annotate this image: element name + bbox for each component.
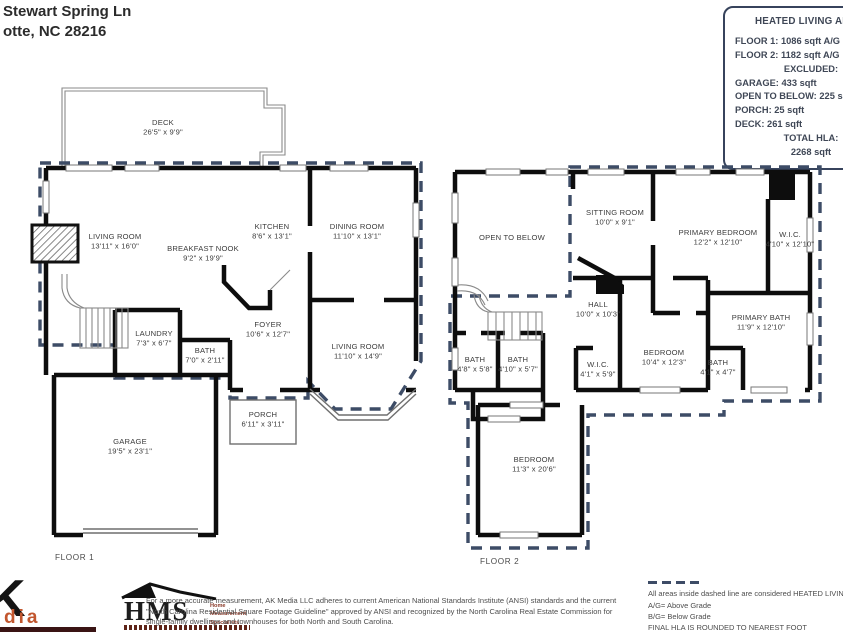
ak-logo-bar — [0, 627, 96, 632]
room-label-dining-room: DINING ROOM — [330, 222, 385, 231]
room-label-bath-a: BATH — [465, 355, 486, 364]
hla-garage: GARAGE: 433 sqft — [735, 77, 843, 91]
room-label-bath-b: BATH — [508, 355, 529, 364]
room-dims-hall: 10'0" x 10'3" — [576, 310, 620, 319]
chimney-chase — [769, 174, 795, 200]
room-label-foyer: FOYER — [254, 320, 281, 329]
address-line2: otte, NC 28216 — [3, 22, 131, 42]
room-label-wic-2: W.I.C. — [587, 360, 609, 369]
dashed-line-symbol — [648, 581, 702, 584]
room-dims-living-room: 13'11" x 16'0" — [91, 242, 139, 251]
hla-total-heading: TOTAL HLA: — [735, 132, 843, 146]
hla-total-value: 2268 sqft — [735, 146, 843, 160]
legend-line-2: A/G= Above Grade — [648, 600, 843, 611]
room-label-open-to-below: OPEN TO BELOW — [479, 233, 546, 242]
room-dims-breakfast-nook: 9'2" x 19'9" — [183, 254, 223, 263]
hla-title: HEATED LIVING AREA: — [735, 15, 843, 30]
room-dims-wic: 4'10" x 12'10" — [766, 240, 815, 249]
room-dims-bath: 7'0" x 2'11" — [185, 356, 224, 365]
room-dims-deck: 26'5" x 9'9" — [143, 128, 183, 137]
fireplace — [32, 225, 78, 262]
room-dims-laundry: 7'3" x 6'7" — [136, 339, 172, 348]
room-dims-bath-b: 4'10" x 5'7" — [498, 365, 538, 374]
garage-door — [83, 529, 198, 533]
room-dims-kitchen: 8'6" x 13'1" — [252, 232, 292, 241]
room-dims-bath-c: 4'1" x 4'7" — [700, 368, 736, 377]
room-label-bath-c: BATH — [708, 358, 729, 367]
room-label-sitting-room: SITTING ROOM — [586, 208, 644, 217]
hla-open-to-below: OPEN TO BELOW: 225 sqft — [735, 90, 843, 104]
room-label-bedroom-2: BEDROOM — [514, 455, 555, 464]
room-label-laundry: LAUNDRY — [135, 329, 173, 338]
room-dims-bedroom: 10'4" x 12'3" — [642, 358, 686, 367]
room-label-deck: DECK — [152, 118, 174, 127]
address-line1: Stewart Spring Ln — [3, 2, 131, 22]
room-label-kitchen: KITCHEN — [255, 222, 290, 231]
room-label-breakfast-nook: BREAKFAST NOOK — [167, 244, 239, 253]
room-dims-bedroom-2: 11'3" x 20'6" — [512, 465, 556, 474]
legend-line-1: All areas inside dashed line are conside… — [648, 588, 843, 599]
heated-living-area-box: HEATED LIVING AREA: FLOOR 1: 1086 sqft A… — [723, 6, 843, 170]
room-label-hall: HALL — [588, 300, 608, 309]
room-label-primary-bedroom: PRIMARY BEDROOM — [679, 228, 758, 237]
room-label-living-room-2: LIVING ROOM — [332, 342, 385, 351]
hla-floor2: FLOOR 2: 1182 sqft A/G — [735, 49, 843, 63]
room-dims-dining-room: 11'10" x 13'1" — [333, 232, 381, 241]
room-label-primary-bath: PRIMARY BATH — [732, 313, 791, 322]
room-label-bath: BATH — [195, 346, 216, 355]
room-dims-sitting-room: 10'0" x 9'1" — [595, 218, 635, 227]
hla-floor1: FLOOR 1: 1086 sqft A/G — [735, 35, 843, 49]
room-label-porch: PORCH — [249, 410, 277, 419]
room-dims-porch: 6'11" x 3'11" — [241, 420, 284, 429]
property-address: Stewart Spring Ln otte, NC 28216 — [3, 2, 131, 43]
floor1-label: FLOOR 1 — [55, 553, 94, 562]
room-label-garage: GARAGE — [113, 437, 147, 446]
ak-media-logo: K dia — [0, 583, 112, 632]
ak-logo-sub: dia — [4, 607, 40, 629]
room-label-bedroom: BEDROOM — [644, 348, 685, 357]
floor2-label: FLOOR 2 — [480, 557, 519, 566]
legend-line-4: FINAL HLA IS ROUNDED TO NEAREST FOOT — [648, 622, 843, 632]
room-label-living-room: LIVING ROOM — [89, 232, 142, 241]
room-dims-wic-2: 4'1" x 5'9" — [580, 370, 616, 379]
hla-porch: PORCH: 25 sqft — [735, 104, 843, 118]
disclaimer-text: For a more accurate measurement, AK Medi… — [146, 596, 620, 628]
hla-excluded-heading: EXCLUDED: — [735, 63, 843, 77]
room-dims-foyer: 10'6" x 12'7" — [246, 330, 290, 339]
closet-door — [270, 270, 290, 290]
legend: All areas inside dashed line are conside… — [648, 581, 843, 632]
floor2-heated-boundary — [450, 167, 820, 548]
hla-deck: DECK: 261 sqft — [735, 118, 843, 132]
room-dims-primary-bath: 11'9" x 12'10" — [737, 323, 785, 332]
legend-line-3: B/G= Below Grade — [648, 611, 843, 622]
room-dims-primary-bedroom: 12'2" x 12'10" — [694, 238, 743, 247]
room-dims-bath-a: 4'8" x 5'8" — [457, 365, 493, 374]
floor2-room-labels: OPEN TO BELOW SITTING ROOM 10'0" x 9'1" … — [457, 208, 814, 474]
room-label-wic: W.I.C. — [779, 230, 801, 239]
room-dims-living-room-2: 11'10" x 14'9" — [334, 352, 382, 361]
floor1-plan: DECK 26'5" x 9'9" LIVING ROOM 13'11" x 1… — [28, 68, 428, 566]
floorplan-page: Stewart Spring Ln otte, NC 28216 HEATED … — [0, 0, 843, 632]
floor2-plan: OPEN TO BELOW SITTING ROOM 10'0" x 9'1" … — [448, 163, 843, 568]
room-dims-garage: 19'5" x 23'1" — [108, 447, 152, 456]
